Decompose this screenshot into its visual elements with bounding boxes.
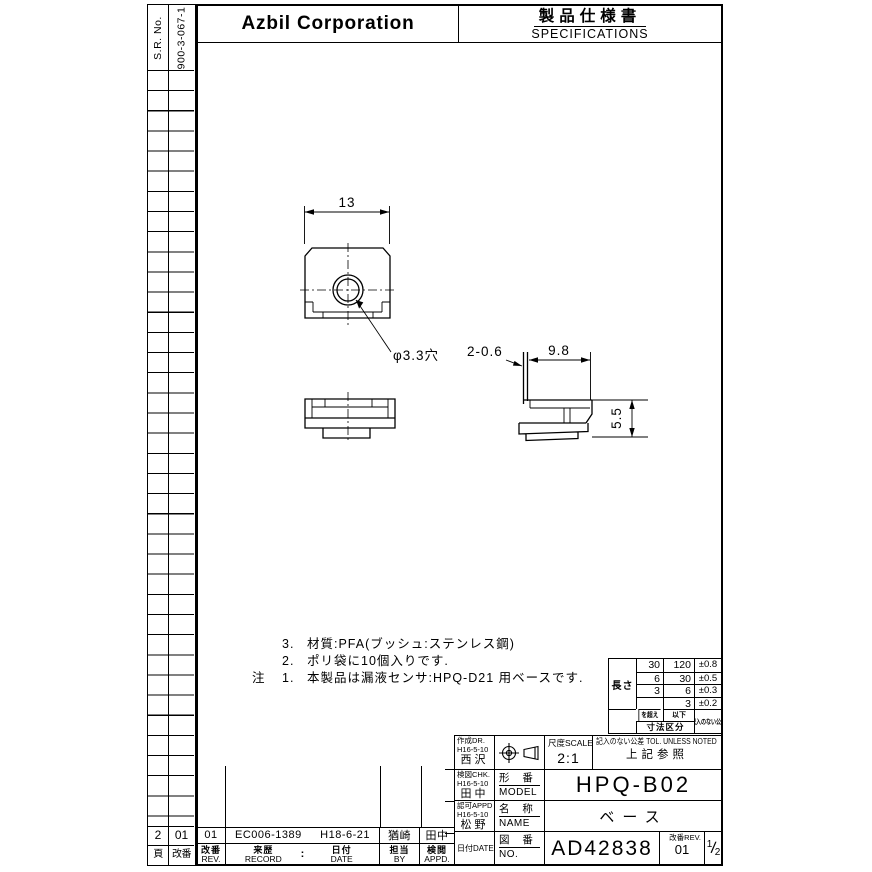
drawing-no-label-cell: 図 番 NO. bbox=[494, 832, 544, 865]
revision-appd-header: 検閲 APPD. bbox=[419, 844, 454, 865]
note-line-3: 3. 材質:PFA(ブッシュ:ステンレス鋼) bbox=[252, 636, 583, 653]
sr-value-cell: 900-3-067-1 bbox=[169, 5, 194, 71]
tolerance-under-label: 以下 bbox=[663, 709, 694, 721]
note-2-text: ポリ袋に10個入りです. bbox=[307, 653, 449, 670]
model-label-cell: 形 番 MODEL bbox=[494, 770, 544, 800]
sr-label-cell: S.R. No. bbox=[148, 5, 168, 71]
dim-hole: φ3.3穴 bbox=[393, 348, 439, 363]
sheet-number-cell: 1 / 2 bbox=[704, 832, 722, 865]
date-label: 日付DATE bbox=[457, 843, 494, 854]
sr-label-column: S.R. No. 2 頁 bbox=[148, 5, 169, 865]
tol-cell: ±0.2 bbox=[694, 697, 721, 710]
row-tick bbox=[445, 833, 454, 834]
sheet-fraction: 1 / 2 bbox=[707, 840, 721, 858]
top-view: 13 φ3.3穴 bbox=[300, 195, 439, 363]
sr-number-strip: S.R. No. 2 頁 900-3-067-1 01 改番 bbox=[147, 4, 196, 866]
sr-value: 900-3-067-1 bbox=[176, 6, 188, 69]
third-angle-projection-icon bbox=[497, 738, 543, 768]
dim-lip: 2-0.6 bbox=[467, 344, 503, 359]
unnoted-tolerance-cell: 記入のない公差 TOL. UNLESS NOTED 上記参照 bbox=[592, 736, 721, 769]
note-line-2: 2. ポリ袋に10個入りです. bbox=[252, 653, 583, 670]
model-label-jp: 形 番 bbox=[499, 771, 540, 786]
tol-cell: ±0.8 bbox=[694, 659, 721, 672]
scale-cell: 尺度SCALE 2:1 bbox=[544, 736, 592, 769]
name-label-en: NAME bbox=[499, 817, 540, 830]
revision-by-header: 担当 BY bbox=[379, 844, 419, 865]
title-block: 作成DR. H16-5-10 西沢 尺度SCALE 2:1 bbox=[454, 735, 723, 866]
drawn-date: H16-5-10 bbox=[457, 746, 492, 755]
name-value-cell: ベース bbox=[544, 801, 722, 831]
dim-height: 5.5 bbox=[609, 407, 624, 429]
note-1-number: 1. bbox=[282, 670, 307, 687]
approved-date: H16-5-10 bbox=[457, 811, 492, 820]
tol-cell: ±0.5 bbox=[694, 672, 721, 685]
page-label-cell: 頁 bbox=[148, 845, 168, 864]
tolerance-unnoted-label: 記入のない公差 bbox=[694, 709, 721, 733]
dim-width: 13 bbox=[338, 195, 355, 210]
unnoted-tolerance-value: 上記参照 bbox=[596, 747, 718, 763]
front-view bbox=[305, 392, 395, 443]
projection-symbol-cell bbox=[494, 736, 544, 769]
note-3-text: 材質:PFA(ブッシュ:ステンレス鋼) bbox=[307, 636, 515, 653]
model-label-en: MODEL bbox=[499, 786, 540, 799]
sheet-den: 2 bbox=[715, 847, 721, 858]
drawn-name: 西沢 bbox=[457, 754, 492, 767]
sr-label: S.R. No. bbox=[152, 16, 164, 60]
name-value: ベース bbox=[599, 806, 667, 827]
scale-value: 2:1 bbox=[548, 749, 589, 767]
tol-cell: 30 bbox=[663, 672, 694, 685]
note-1-text: 本製品は漏液センサ:HPQ-D21 用ベースです. bbox=[307, 670, 583, 687]
rev-cell: 改番REV. 01 bbox=[659, 832, 704, 865]
tolerance-over-label: を超え bbox=[638, 709, 660, 721]
model-value: HPQ-B02 bbox=[576, 772, 691, 798]
revision-column-stub bbox=[421, 766, 422, 827]
revision-column-stub bbox=[380, 766, 381, 827]
revision-record-no: EC006-1389 bbox=[235, 829, 302, 841]
revision-column-stub bbox=[225, 766, 226, 827]
tol-cell: 30 bbox=[636, 659, 663, 672]
specification-sheet: S.R. No. 2 頁 900-3-067-1 01 改番 Azbil Cor… bbox=[0, 0, 872, 872]
tolerance-range-label: 寸法区分 bbox=[636, 721, 694, 733]
doc-title-en: SPECIFICATIONS bbox=[531, 27, 648, 41]
checked-cell: 検図CHK. H16-5-10 田中 bbox=[455, 770, 494, 800]
tol-cell bbox=[636, 697, 663, 710]
revision-record-table: 01 EC006-1389 H18-6-21 猶崎 田中 改番 REV. 来歴 … bbox=[196, 827, 455, 866]
tol-cell: 6 bbox=[636, 672, 663, 685]
page-number-cell: 2 bbox=[148, 826, 168, 845]
note-3-number: 3. bbox=[282, 636, 307, 653]
drawing-no-value-cell: AD42838 bbox=[544, 832, 659, 865]
dim-depth: 9.8 bbox=[548, 343, 570, 358]
scale-label: 尺度SCALE bbox=[548, 737, 589, 749]
approved-cell: 認可APPD H16-5-10 松野 bbox=[455, 801, 494, 831]
tol-cell: ±0.3 bbox=[694, 684, 721, 697]
row-tick bbox=[445, 769, 454, 770]
note-mark: 注 bbox=[252, 670, 282, 687]
tol-cell: 3 bbox=[636, 684, 663, 697]
sr-value-column: 900-3-067-1 01 改番 bbox=[169, 5, 194, 865]
checked-date: H16-5-10 bbox=[457, 780, 492, 789]
note-line-1: 注 1. 本製品は漏液センサ:HPQ-D21 用ベースです. bbox=[252, 670, 583, 687]
company-name: Azbil Corporation bbox=[242, 13, 415, 35]
sr-grid-left bbox=[148, 71, 168, 826]
revision-date-value: H18-6-21 bbox=[320, 829, 370, 841]
sr-grid-right bbox=[169, 71, 194, 826]
revision-rev-header: 改番 REV. bbox=[197, 844, 225, 865]
tol-cell: 3 bbox=[663, 697, 694, 710]
date-label-cell: 日付DATE bbox=[455, 832, 494, 865]
tol-cell: 120 bbox=[663, 659, 694, 672]
revision-record-value: EC006-1389 H18-6-21 bbox=[225, 828, 379, 843]
unnoted-tolerance-label: 記入のない公差 TOL. UNLESS NOTED bbox=[596, 737, 701, 747]
rev-value: 01 bbox=[663, 842, 701, 858]
revision-rev-value: 01 bbox=[197, 828, 225, 843]
rev-label-cell: 改番 bbox=[169, 845, 194, 864]
document-title-cell: 製品仕様書 SPECIFICATIONS bbox=[459, 6, 721, 43]
tolerance-table: 長さ 30 120 ±0.8 6 30 ±0.5 3 6 ±0.3 3 ±0.2… bbox=[608, 658, 723, 734]
tolerance-length-label: 長さ bbox=[609, 659, 636, 709]
note-2-number: 2. bbox=[282, 653, 307, 670]
row-tick bbox=[445, 801, 454, 802]
doc-title-jp: 製品仕様書 bbox=[534, 8, 647, 27]
technical-drawing: 13 φ3.3穴 9.8 2-0.6 bbox=[196, 43, 723, 735]
model-value-cell: HPQ-B02 bbox=[544, 770, 722, 800]
rev-number-cell: 01 bbox=[169, 826, 194, 845]
revision-appd-value: 田中 bbox=[419, 828, 454, 843]
revision-record-header: 来歴 RECORD : 日付 DATE bbox=[225, 844, 379, 865]
drawing-no-label-en: NO. bbox=[499, 848, 540, 861]
name-label-jp: 名 称 bbox=[499, 802, 540, 817]
rev-label: 改番REV. bbox=[663, 833, 701, 842]
drawing-number: AD42838 bbox=[551, 837, 653, 861]
tol-cell: 6 bbox=[663, 684, 694, 697]
drawing-no-label-jp: 図 番 bbox=[499, 833, 540, 848]
notes: 3. 材質:PFA(ブッシュ:ステンレス鋼) 2. ポリ袋に10個入りです. 注… bbox=[252, 636, 583, 687]
company-title-cell: Azbil Corporation bbox=[198, 6, 459, 43]
revision-by-value: 猶崎 bbox=[379, 828, 419, 843]
side-view: 9.8 2-0.6 5.5 bbox=[467, 343, 648, 441]
name-label-cell: 名 称 NAME bbox=[494, 801, 544, 831]
drawn-cell: 作成DR. H16-5-10 西沢 bbox=[455, 736, 494, 769]
tolerance-blank-cell bbox=[609, 709, 636, 733]
